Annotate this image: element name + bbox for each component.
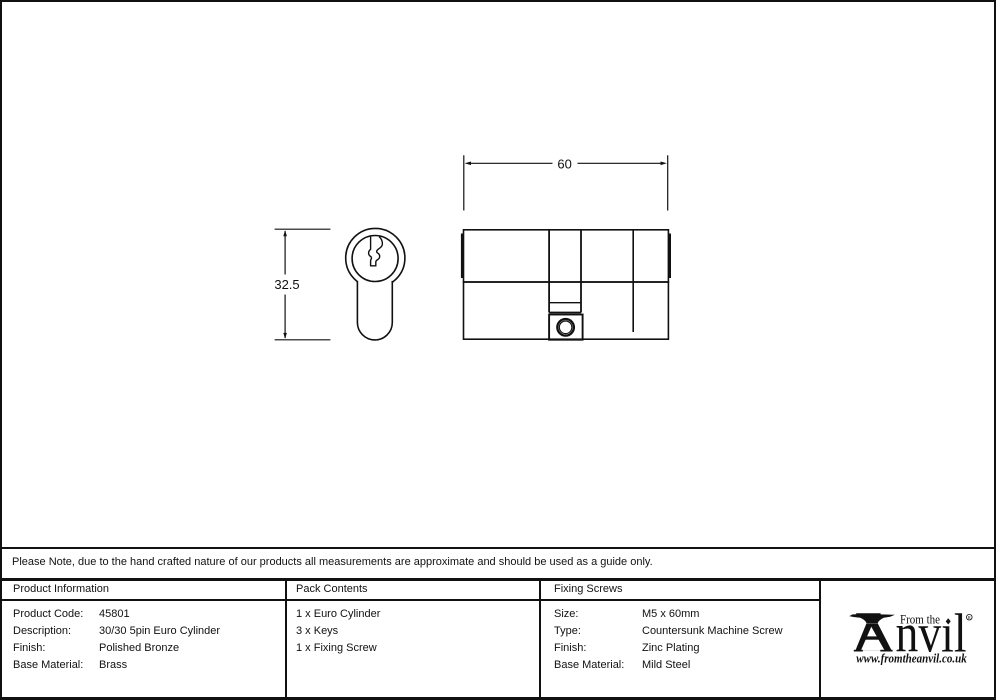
svg-text:www.fromtheanvil.co.uk: www.fromtheanvil.co.uk [856,652,967,666]
svg-text:32.5: 32.5 [274,277,299,292]
svg-text:From the: From the [900,613,940,627]
svg-text:60: 60 [557,156,571,171]
svg-text:R: R [968,615,971,620]
